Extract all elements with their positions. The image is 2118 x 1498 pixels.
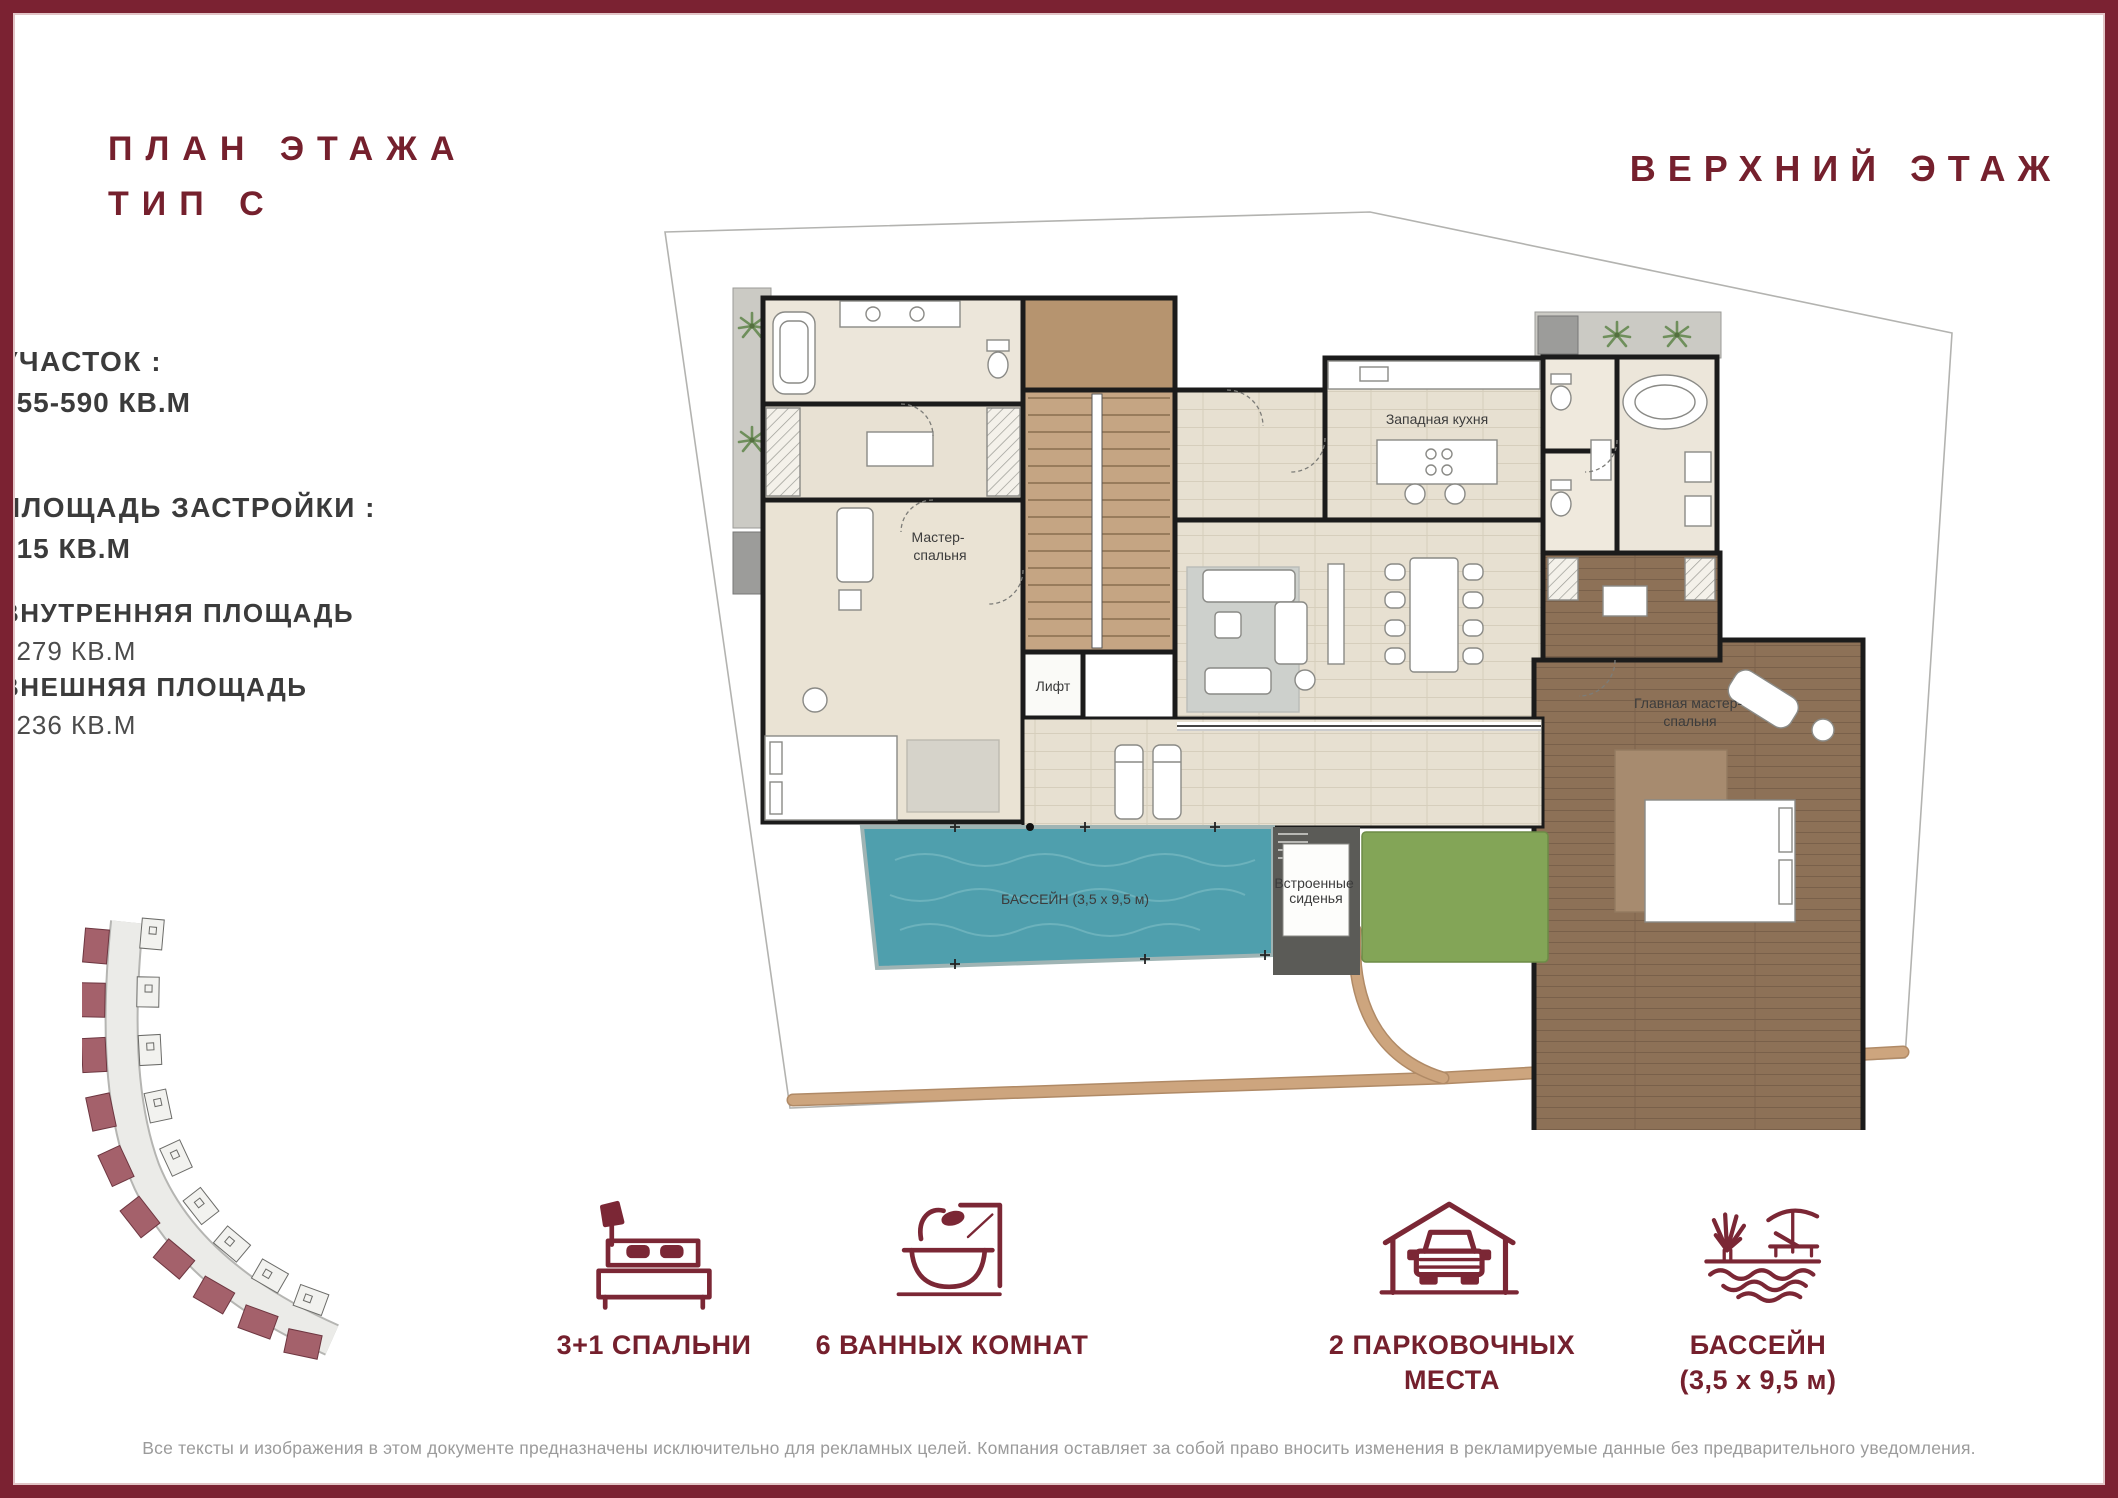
stat-external-label: ВНЕШНЯЯ ПЛОЩАДЬ (0, 672, 308, 703)
feature-pool-label-line1: БАССЕЙН (1568, 1328, 1948, 1363)
feature-bathrooms: 6 ВАННЫХ КОМНАТ (762, 1192, 1142, 1363)
page-title-line2: ТИП C (108, 177, 468, 232)
stat-external: ВНЕШНЯЯ ПЛОЩАДЬ : 236 КВ.М (0, 672, 308, 741)
stat-built-label: ПЛОЩАДЬ ЗАСТРОЙКИ : (0, 492, 376, 524)
label-lift: Лифт (1036, 678, 1071, 694)
stat-built-value: 515 КВ.М (0, 533, 376, 565)
room-entry-hall (1175, 390, 1325, 520)
stat-internal-label: ВНУТРЕННЯЯ ПЛОЩАДЬ (0, 598, 354, 629)
feature-pool-label-line2: (3,5 х 9,5 м) (1568, 1363, 1948, 1398)
stat-external-value: : 236 КВ.М (0, 710, 308, 741)
feature-bathrooms-label: 6 ВАННЫХ КОМНАТ (762, 1328, 1142, 1363)
page-title-line1: ПЛАН ЭТАЖА (108, 122, 468, 177)
stat-internal: ВНУТРЕННЯЯ ПЛОЩАДЬ : 279 КВ.М (0, 598, 354, 667)
glass-wall (1177, 722, 1541, 731)
disclaimer-text: Все тексты и изображения в этом документ… (100, 1438, 2018, 1459)
stat-plot: УЧАСТОК : 555-590 КВ.М (0, 346, 191, 419)
brochure-page: ПЛАН ЭТАЖА ТИП C ВЕРХНИЙ ЭТАЖ УЧАСТОК : … (0, 0, 2118, 1498)
pool-lounger-icon (1568, 1192, 1948, 1314)
page-title: ПЛАН ЭТАЖА ТИП C (108, 122, 468, 232)
stairs-landing (1023, 298, 1175, 390)
stat-internal-value: : 279 КВ.М (0, 636, 354, 667)
label-kitchen: Западная кухня (1386, 411, 1488, 427)
stat-built: ПЛОЩАДЬ ЗАСТРОЙКИ : 515 КВ.М (0, 492, 376, 565)
terrace (1023, 718, 1543, 827)
grass-patch (1362, 832, 1548, 962)
stat-plot-label: УЧАСТОК : (0, 346, 191, 378)
stat-plot-value: 555-590 КВ.М (0, 387, 191, 419)
site-plan-map (82, 900, 344, 1375)
bathtub-icon (762, 1192, 1142, 1314)
feature-pool: БАССЕЙН (3,5 х 9,5 м) (1568, 1192, 1948, 1398)
label-pool: БАССЕЙН (3,5 х 9,5 м) (1001, 890, 1149, 907)
floor-plan: Мастер- спальня Западная кухня Лифт Глав… (615, 140, 2005, 1130)
